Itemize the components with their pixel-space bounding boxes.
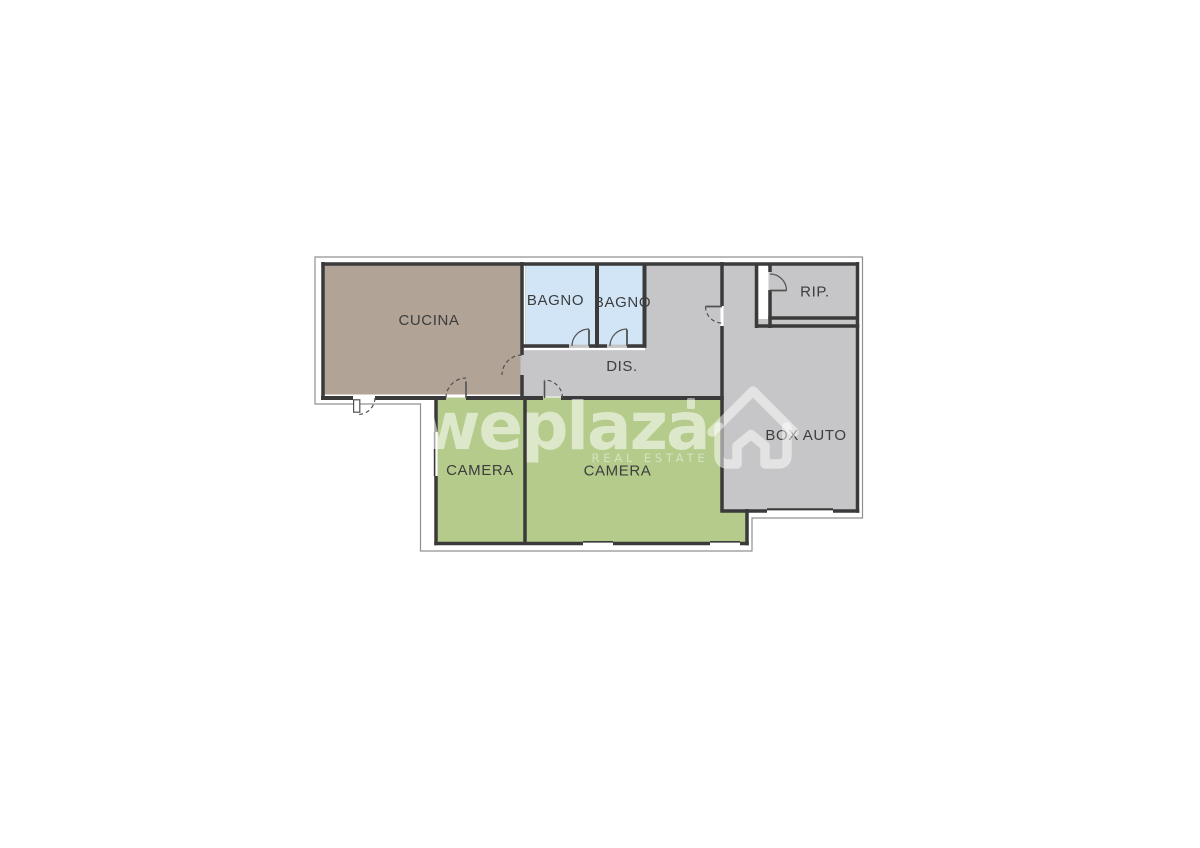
label-box-auto: BOX AUTO	[765, 427, 846, 444]
cavity-rip-left	[759, 263, 769, 319]
watermark-mark	[687, 398, 695, 409]
label-bagno-2: BAGNO	[594, 294, 651, 311]
label-camera-2: CAMERA	[584, 463, 652, 480]
label-bagno-1: BAGNO	[527, 292, 584, 309]
floor-plan-page: CUCINA BAGNO BAGNO DIS. RIP. BOX AUTO CA…	[0, 0, 1200, 848]
door-jamb-entrance	[354, 400, 360, 412]
label-cucina: CUCINA	[398, 312, 459, 329]
room-camera-2-extension	[721, 510, 746, 543]
watermark-tagline: REAL ESTATE	[592, 451, 709, 465]
floor-plan-drawing: CUCINA BAGNO BAGNO DIS. RIP. BOX AUTO CA…	[0, 0, 1200, 848]
label-disimpegno: DIS.	[606, 358, 638, 375]
door-arc-entrance	[358, 398, 375, 415]
room-cucina	[325, 266, 521, 395]
label-ripostiglio: RIP.	[800, 284, 830, 301]
